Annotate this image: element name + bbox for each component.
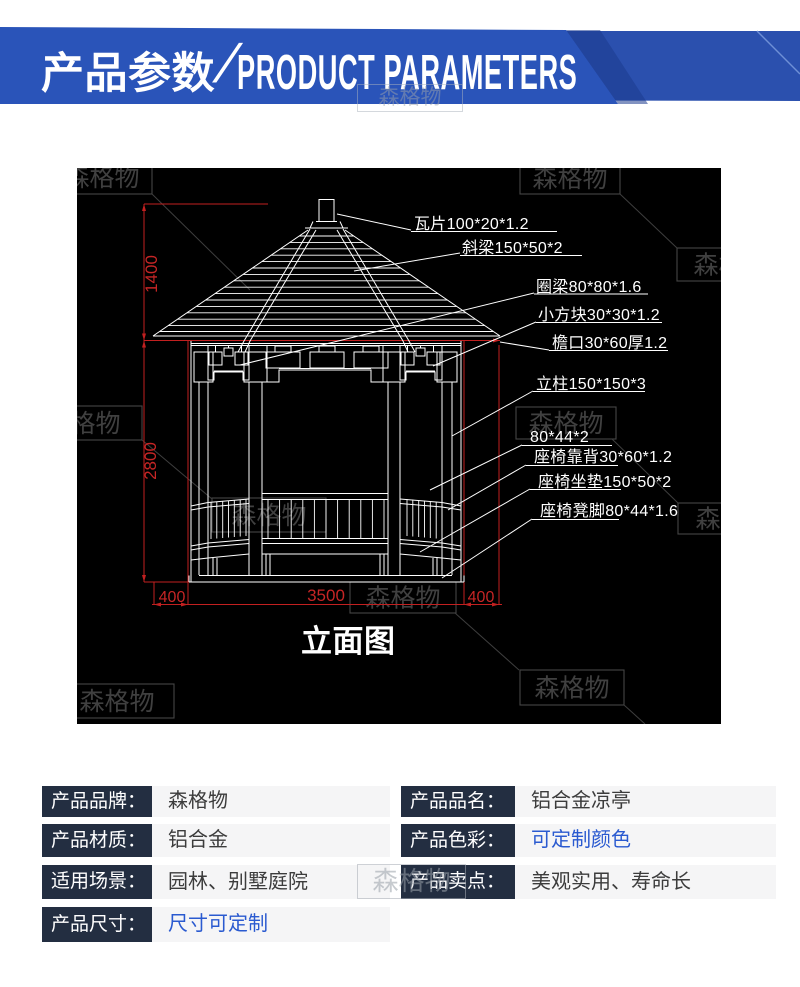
svg-text:400: 400 bbox=[468, 589, 495, 606]
svg-text:3500: 3500 bbox=[307, 586, 345, 605]
svg-text:1400: 1400 bbox=[142, 255, 161, 293]
svg-text:圈梁80*80*1.6: 圈梁80*80*1.6 bbox=[536, 278, 642, 296]
svg-text:2800: 2800 bbox=[141, 442, 160, 480]
svg-text:80*44*2: 80*44*2 bbox=[530, 429, 589, 446]
svg-text:400: 400 bbox=[159, 589, 186, 606]
svg-text:森格物: 森格物 bbox=[77, 168, 140, 192]
svg-text:立柱150*150*3: 立柱150*150*3 bbox=[536, 375, 646, 393]
svg-text:森格物: 森格物 bbox=[534, 675, 609, 703]
svg-text:森格物: 森格物 bbox=[79, 688, 154, 716]
svg-text:森格物: 森格物 bbox=[231, 502, 306, 530]
svg-text:座椅坐垫150*50*2: 座椅坐垫150*50*2 bbox=[538, 473, 671, 491]
svg-text:森格物: 森格物 bbox=[532, 168, 607, 193]
svg-text:斜梁150*50*2: 斜梁150*50*2 bbox=[462, 239, 563, 257]
svg-text:座椅凳脚80*44*1.6: 座椅凳脚80*44*1.6 bbox=[540, 502, 678, 520]
svg-text:森格物: 森格物 bbox=[77, 410, 121, 438]
svg-text:森格物: 森格物 bbox=[365, 585, 440, 613]
svg-text:小方块30*30*1.2: 小方块30*30*1.2 bbox=[538, 306, 660, 324]
svg-text:森格物: 森格物 bbox=[695, 506, 721, 534]
svg-text:座椅靠背30*60*1.2: 座椅靠背30*60*1.2 bbox=[534, 448, 672, 466]
svg-text:檐口30*60厚1.2: 檐口30*60厚1.2 bbox=[552, 334, 667, 352]
svg-text:立面图: 立面图 bbox=[301, 624, 396, 659]
svg-text:瓦片100*20*1.2: 瓦片100*20*1.2 bbox=[414, 215, 529, 233]
svg-text:森格物: 森格物 bbox=[693, 252, 721, 280]
